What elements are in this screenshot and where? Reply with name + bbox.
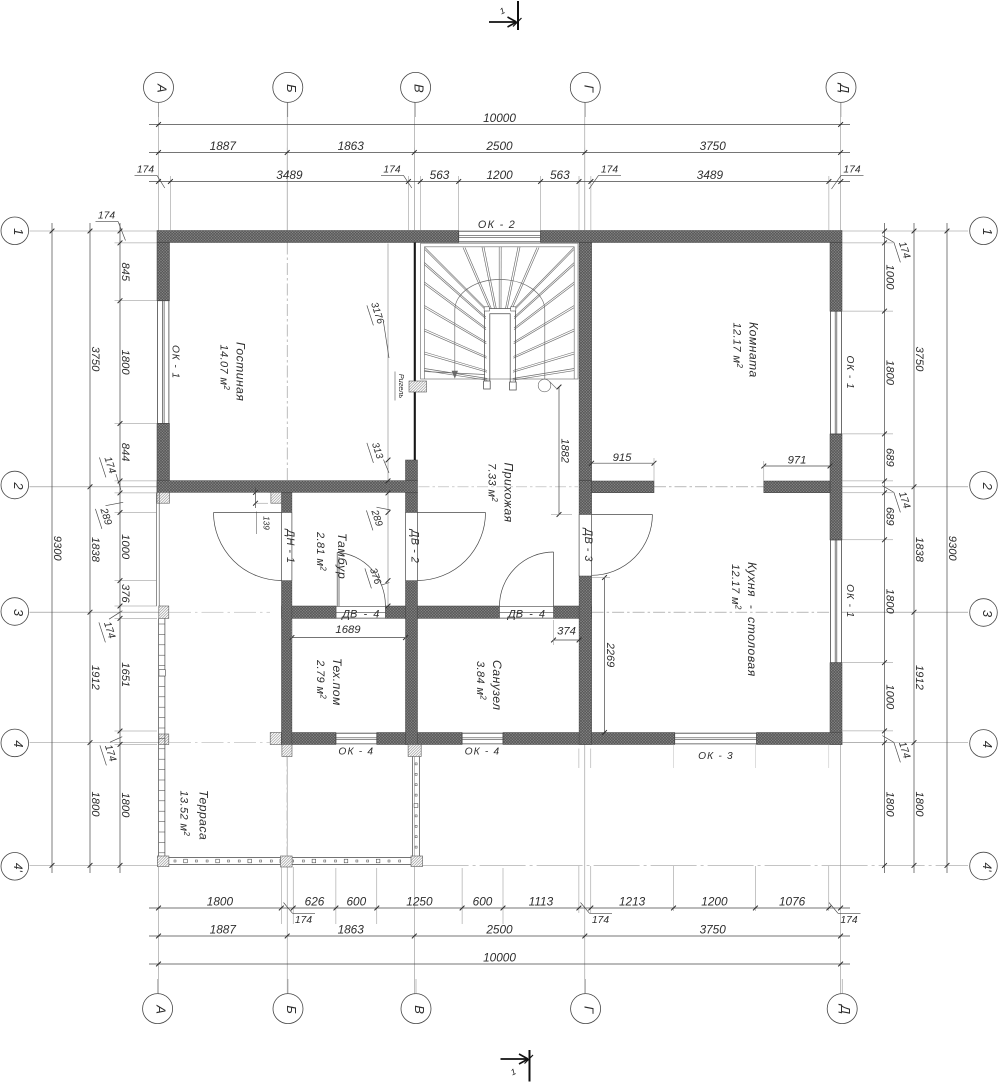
svg-text:1912: 1912 [913,665,925,691]
svg-text:Д: Д [837,82,852,93]
svg-text:1: 1 [980,228,995,235]
svg-text:Прихожая: Прихожая [502,463,516,523]
svg-text:3750: 3750 [89,346,101,372]
svg-text:Терраса: Терраса [197,790,211,840]
svg-text:4': 4' [11,863,25,873]
svg-text:1838: 1838 [89,537,101,563]
svg-text:1213: 1213 [619,895,646,909]
svg-text:3: 3 [11,609,26,617]
svg-text:1689: 1689 [335,624,361,636]
svg-text:1800: 1800 [119,350,131,376]
svg-text:174: 174 [840,915,857,926]
svg-text:2500: 2500 [485,923,513,937]
svg-text:1200: 1200 [486,168,513,182]
svg-text:1800: 1800 [884,589,896,615]
svg-text:1000: 1000 [884,684,896,710]
svg-text:Б: Б [284,1005,299,1014]
svg-text:1200: 1200 [701,895,728,909]
svg-text:ОК - 4: ОК - 4 [338,747,374,758]
svg-text:А: А [155,83,170,93]
svg-text:3.84 м2: 3.84 м2 [474,661,487,700]
svg-text:Ригель: Ригель [397,374,406,399]
svg-text:ОК - 1: ОК - 1 [844,355,855,389]
svg-text:Тамбур: Тамбур [335,533,349,580]
svg-text:845: 845 [119,262,131,281]
svg-text:1838: 1838 [913,537,925,563]
svg-text:Санузел: Санузел [490,660,504,710]
svg-text:1800: 1800 [913,792,925,818]
svg-text:1000: 1000 [884,265,896,291]
svg-text:12.17 м2: 12.17 м2 [731,323,744,369]
svg-text:2: 2 [11,481,26,490]
svg-text:14.07 м2: 14.07 м2 [218,345,231,391]
svg-text:10000: 10000 [483,951,516,965]
svg-text:174: 174 [592,915,609,926]
svg-text:4: 4 [11,740,26,747]
svg-text:1887: 1887 [210,923,237,937]
svg-text:Д: Д [838,1003,853,1014]
svg-text:3750: 3750 [913,346,925,372]
svg-text:7.33 м2: 7.33 м2 [486,463,499,502]
svg-text:4': 4' [980,863,994,873]
svg-text:626: 626 [305,895,325,909]
svg-text:9300: 9300 [51,536,63,562]
svg-text:3489: 3489 [697,168,724,182]
svg-text:174: 174 [295,915,312,926]
svg-text:13.52 м2: 13.52 м2 [178,791,191,837]
svg-text:10000: 10000 [483,111,516,125]
svg-text:ДВ - 4: ДВ - 4 [340,608,379,620]
svg-text:1863: 1863 [338,139,365,153]
svg-text:ДВ - 4: ДВ - 4 [506,608,545,620]
svg-text:ДН - 1: ДН - 1 [284,529,296,564]
svg-text:689: 689 [884,448,896,467]
svg-text:3750: 3750 [700,923,727,937]
svg-text:Г: Г [582,1006,597,1014]
svg-text:Тех.пом: Тех.пом [330,658,344,706]
svg-text:563: 563 [430,168,450,182]
svg-text:ОК - 4: ОК - 4 [465,747,501,758]
svg-text:1800: 1800 [884,360,896,386]
svg-text:9300: 9300 [946,536,958,562]
svg-text:1076: 1076 [779,895,806,909]
svg-text:3489: 3489 [276,168,303,182]
svg-text:689: 689 [884,507,896,526]
svg-text:ОК - 3: ОК - 3 [698,751,734,762]
svg-text:563: 563 [550,168,570,182]
svg-text:844: 844 [119,443,131,462]
svg-text:174: 174 [98,211,115,222]
svg-text:174: 174 [601,165,618,176]
svg-text:139: 139 [262,516,271,530]
svg-text:174: 174 [843,165,860,176]
svg-text:2.79 м2: 2.79 м2 [314,659,327,699]
svg-text:1651: 1651 [119,662,131,687]
svg-text:1912: 1912 [89,665,101,691]
svg-text:1863: 1863 [338,923,365,937]
svg-text:1800: 1800 [884,792,896,818]
svg-text:Гостиная: Гостиная [234,342,248,401]
svg-text:174: 174 [383,165,400,176]
svg-text:1800: 1800 [89,792,101,818]
svg-text:174: 174 [137,165,154,176]
svg-text:ДВ - 3: ДВ - 3 [582,527,594,561]
svg-text:1000: 1000 [119,534,131,560]
svg-text:ОК - 2: ОК - 2 [478,219,516,231]
svg-text:3750: 3750 [700,139,727,153]
svg-text:2500: 2500 [485,139,513,153]
svg-text:915: 915 [613,452,633,464]
svg-text:600: 600 [346,895,366,909]
svg-text:1882: 1882 [558,438,570,462]
svg-text:1800: 1800 [119,792,131,818]
svg-text:1: 1 [11,228,26,235]
svg-text:2.81 м2: 2.81 м2 [314,531,327,571]
svg-text:А: А [154,1004,169,1014]
svg-text:1800: 1800 [207,895,234,909]
svg-text:В: В [412,84,427,93]
svg-text:ОК - 1: ОК - 1 [844,584,855,618]
svg-text:1250: 1250 [406,895,433,909]
svg-text:3: 3 [980,610,995,618]
svg-text:Г: Г [581,85,596,93]
svg-text:Комната: Комната [747,322,761,378]
svg-text:376: 376 [119,584,131,603]
svg-text:2: 2 [980,482,995,491]
svg-text:2269: 2269 [604,642,616,667]
svg-text:1887: 1887 [210,139,237,153]
svg-text:1113: 1113 [529,895,554,909]
svg-text:12.17 м2: 12.17 м2 [729,564,742,610]
svg-text:600: 600 [473,895,493,909]
svg-text:В: В [412,1005,427,1014]
svg-text:971: 971 [788,455,807,467]
svg-text:4: 4 [980,741,995,748]
svg-text:ОК - 1: ОК - 1 [170,345,181,379]
svg-text:ДВ - 2: ДВ - 2 [409,529,421,563]
svg-text:Б: Б [284,84,299,93]
svg-text:Кухня - столовая: Кухня - столовая [745,562,759,677]
svg-text:374: 374 [557,626,576,638]
